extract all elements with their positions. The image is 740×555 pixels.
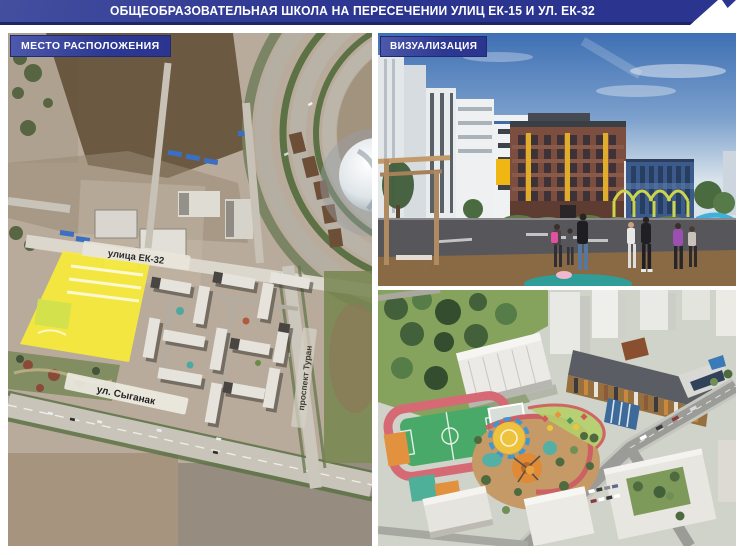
- curb: [378, 218, 736, 220]
- banner-corner-accent: [722, 0, 736, 8]
- visualization-badge: ВИЗУАЛИЗАЦИЯ: [380, 36, 487, 57]
- title-banner: ОБЩЕОБРАЗОВАТЕЛЬНАЯ ШКОЛА НА ПЕРЕСЕЧЕНИИ…: [0, 0, 722, 25]
- school-building-render: [510, 113, 626, 221]
- satellite-map: улица ЕК-32 ул. Сыганак проспект Туран: [8, 33, 372, 546]
- banner-shadow-strip: [0, 22, 722, 25]
- slide: ОБЩЕОБРАЗОВАТЕЛЬНАЯ ШКОЛА НА ПЕРЕСЕЧЕНИИ…: [0, 0, 740, 555]
- page-title: ОБЩЕОБРАЗОВАТЕЛЬНАЯ ШКОЛА НА ПЕРЕСЕЧЕНИИ…: [25, 0, 681, 22]
- aerial-render: [378, 290, 736, 546]
- aerial-render-panel: [378, 290, 736, 546]
- purple-jacket: [673, 229, 683, 246]
- pink-backpack: [551, 232, 558, 243]
- street-render: [378, 33, 736, 286]
- bag: [556, 271, 572, 279]
- terrain-patch: [8, 453, 178, 546]
- map-badge: МЕСТО РАСПОЛОЖЕНИЯ: [10, 35, 171, 57]
- visualization-photo-panel: ВИЗУАЛИЗАЦИЯ: [378, 33, 736, 286]
- site-field: [34, 299, 71, 329]
- location-map-panel: МЕСТО РАСПОЛОЖЕНИЯ: [8, 33, 372, 546]
- yellow-circle: [493, 422, 525, 454]
- green-field: [324, 271, 372, 463]
